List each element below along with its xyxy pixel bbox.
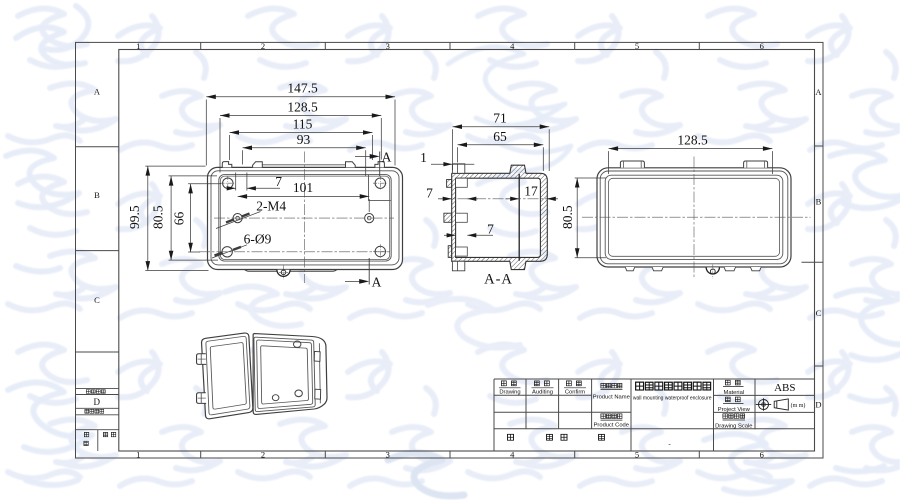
svg-text:A: A	[382, 149, 392, 164]
svg-text:C: C	[94, 295, 100, 305]
svg-text:2: 2	[261, 450, 265, 460]
svg-text:115: 115	[293, 116, 313, 131]
svg-text:Product Code: Product Code	[594, 422, 629, 428]
svg-text:D: D	[815, 400, 821, 410]
svg-text:A: A	[94, 87, 101, 97]
svg-text:Confirm: Confirm	[565, 390, 585, 396]
svg-text:17: 17	[524, 184, 538, 199]
svg-text:ABS: ABS	[774, 382, 795, 394]
svg-text:5: 5	[635, 41, 639, 51]
svg-text:1: 1	[420, 150, 427, 165]
svg-text:65: 65	[493, 129, 507, 144]
svg-text:80.5: 80.5	[560, 205, 575, 229]
svg-text:5: 5	[635, 450, 639, 460]
svg-text:Auditing: Auditing	[532, 390, 553, 396]
svg-text:D: D	[94, 397, 101, 407]
svg-text:Material: Material	[723, 390, 744, 396]
svg-text:2: 2	[261, 41, 265, 51]
svg-text:A: A	[815, 87, 822, 97]
svg-text:B: B	[94, 190, 100, 200]
svg-text:147.5: 147.5	[287, 81, 318, 96]
svg-text:7: 7	[487, 221, 494, 236]
svg-text:101: 101	[293, 180, 313, 195]
svg-text:99.5: 99.5	[127, 205, 142, 229]
svg-text:wall mounting waterproof enclo: wall mounting waterproof enclosure	[633, 395, 712, 401]
svg-text:Drawing Scale: Drawing Scale	[715, 423, 752, 429]
svg-text:C: C	[816, 308, 822, 318]
svg-text:7: 7	[426, 185, 433, 200]
svg-text:128.5: 128.5	[677, 132, 708, 147]
svg-text:Drawing: Drawing	[499, 390, 520, 396]
svg-text:7: 7	[275, 174, 282, 189]
svg-text:1: 1	[136, 450, 140, 460]
svg-text:6-Ø9: 6-Ø9	[244, 232, 272, 247]
svg-text:3: 3	[386, 450, 390, 460]
svg-text:A: A	[372, 274, 382, 289]
svg-text:B: B	[816, 197, 822, 207]
svg-text:A-A: A-A	[484, 271, 513, 287]
svg-text:Product Name: Product Name	[593, 394, 630, 400]
svg-text:80.5: 80.5	[150, 205, 165, 229]
svg-text:4: 4	[510, 450, 515, 460]
svg-text:(m m): (m m)	[791, 402, 806, 409]
svg-text:71: 71	[493, 111, 507, 126]
svg-text:1: 1	[136, 41, 140, 51]
svg-text:93: 93	[297, 132, 311, 147]
svg-text:4: 4	[510, 41, 515, 51]
svg-text:3: 3	[386, 41, 390, 51]
svg-text:Project View: Project View	[718, 407, 751, 413]
svg-text:6: 6	[760, 450, 764, 460]
svg-text:66: 66	[171, 212, 186, 226]
svg-text:6: 6	[760, 41, 764, 51]
svg-text:128.5: 128.5	[287, 99, 318, 114]
svg-text:2-M4: 2-M4	[256, 198, 286, 213]
